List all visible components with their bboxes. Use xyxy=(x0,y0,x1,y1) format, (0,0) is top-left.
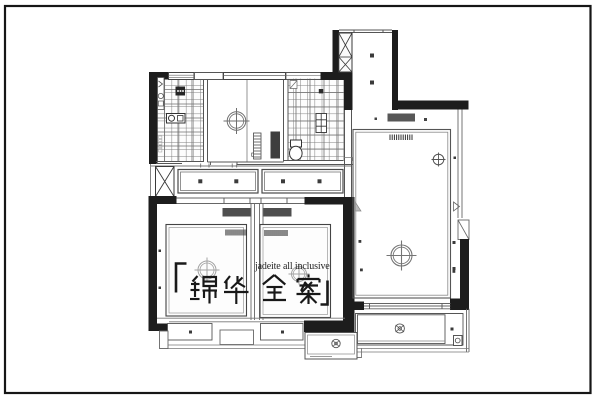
svg-text:jadeite all inclusive: jadeite all inclusive xyxy=(254,261,330,272)
